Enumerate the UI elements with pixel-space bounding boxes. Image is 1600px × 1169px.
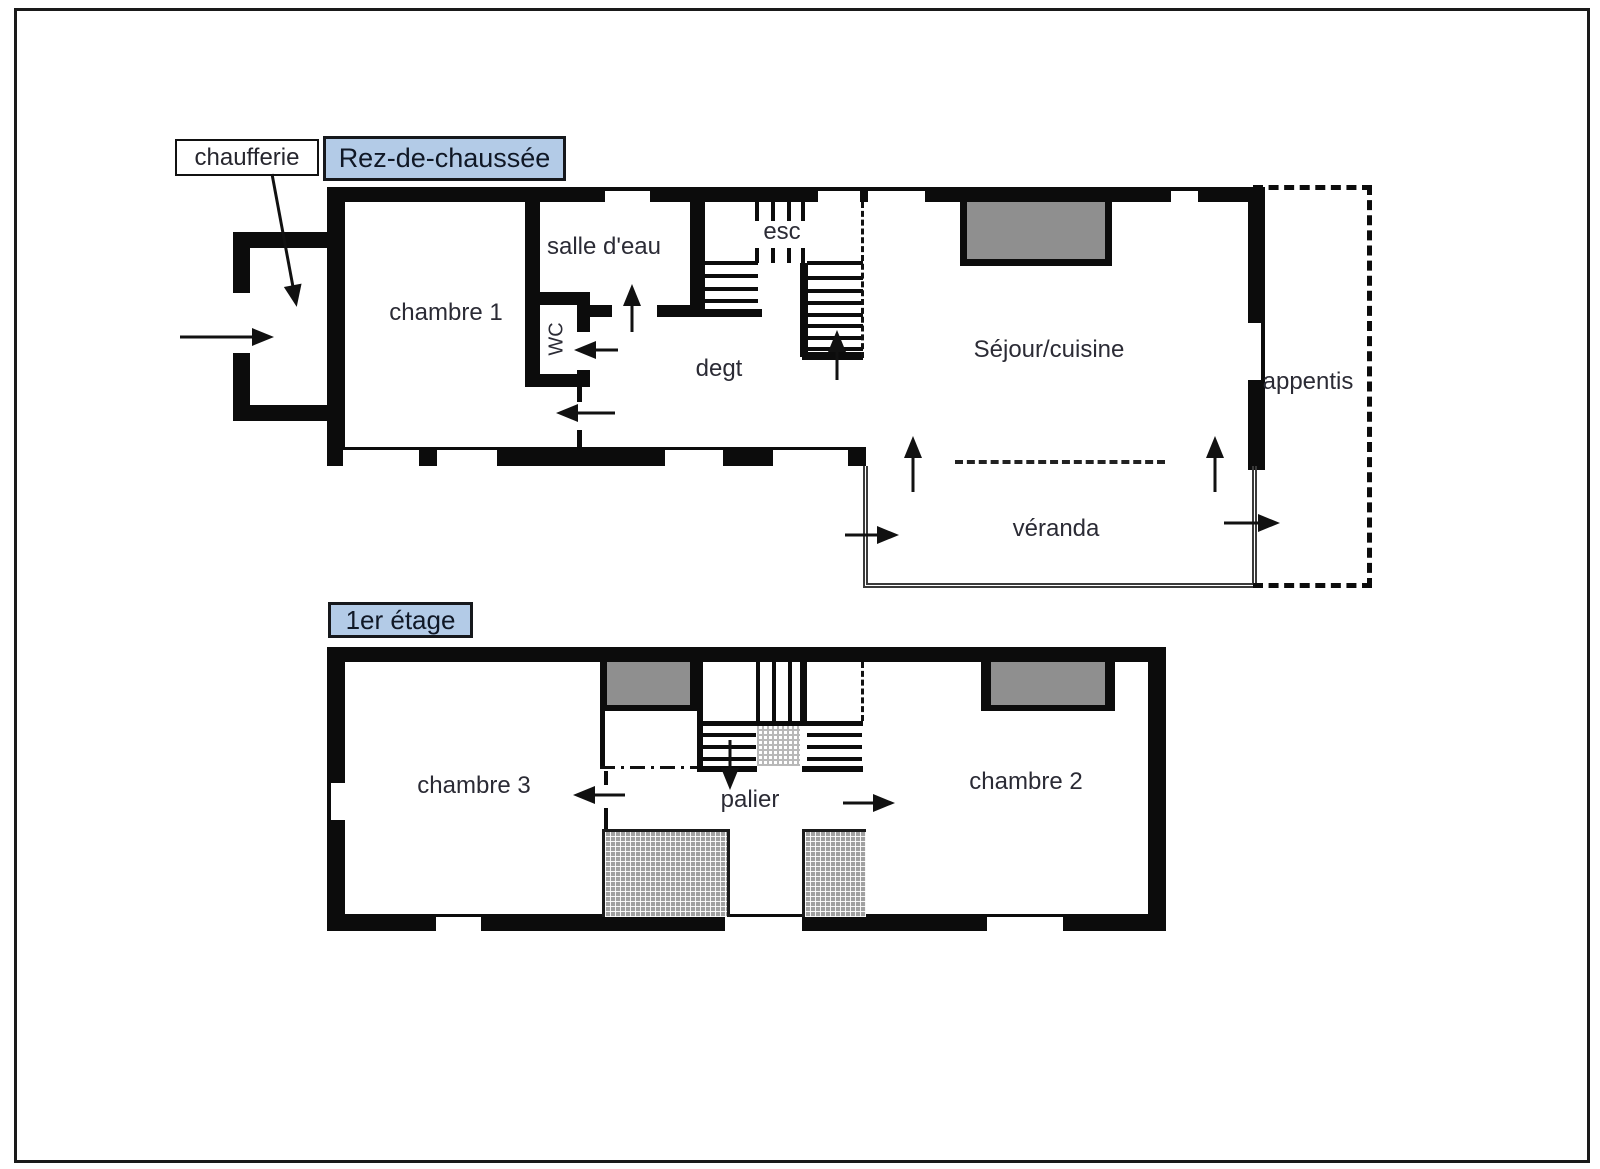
ff-chambre3-wall-lower	[604, 808, 608, 829]
room-label-chambre3: chambre 3	[417, 772, 530, 800]
gf-left-wall	[327, 187, 345, 466]
ff-stairwell-west-wall	[697, 662, 703, 771]
stair-right-flight-edge	[802, 352, 863, 360]
stair-tread	[807, 757, 862, 761]
ff-chimney-right-block	[991, 662, 1105, 705]
wall-chambre1-salledeau	[525, 202, 540, 292]
room-label-salledeau: salle d'eau	[547, 233, 661, 261]
room-label-veranda: véranda	[1013, 515, 1100, 543]
gf-bottom-window-3	[665, 450, 723, 466]
gf-section-dashed-line	[861, 202, 864, 358]
ff-left-window	[331, 783, 345, 820]
ff-top-wall	[327, 647, 1166, 662]
stair-tread	[755, 202, 759, 221]
stair-tread	[703, 745, 756, 749]
stair-tread	[756, 662, 760, 721]
stair-tread	[695, 261, 758, 265]
gf-chimney-block	[967, 202, 1105, 259]
stair-tread	[807, 745, 862, 749]
gf-top-window-4	[1171, 191, 1198, 202]
room-label-palier: palier	[721, 786, 780, 814]
floor-plan-page: chaufferie Rez-de-chaussée 1er étage	[0, 0, 1600, 1169]
room-label-esc: esc	[763, 218, 800, 246]
chaufferie-bottom-wall	[233, 405, 345, 421]
stair-tread	[703, 757, 756, 761]
room-label-sejour-cuisine: Séjour/cuisine	[974, 336, 1125, 364]
stair-tread	[787, 248, 791, 263]
gf-top-window-3	[868, 191, 925, 202]
room-label-degt: degt	[696, 355, 743, 383]
first-floor-title-text: 1er étage	[346, 605, 456, 636]
room-label-chambre2: chambre 2	[969, 768, 1082, 796]
gf-top-window-1	[605, 191, 650, 202]
ff-nook-left-wall	[600, 711, 605, 768]
chaufferie-left-wall-upper	[233, 232, 250, 293]
ff-right-wall	[1148, 647, 1166, 931]
ff-bottom-window-2	[725, 917, 802, 931]
ff-dashed-line-upper	[861, 662, 864, 721]
stair-tread	[788, 662, 792, 721]
gf-bottom-window-2	[437, 450, 497, 466]
ff-left-flight-edge	[697, 766, 757, 772]
stair-tread	[807, 347, 863, 351]
ff-hatched-area-left	[602, 829, 730, 917]
stair-tread	[695, 287, 758, 291]
gf-top-wall	[327, 187, 1265, 202]
stair-tread	[807, 261, 863, 265]
room-label-appentis: appentis	[1263, 368, 1354, 396]
ff-bottom-window-3	[987, 917, 1063, 931]
stair-left-flight-edge	[690, 309, 762, 317]
wc-left-wall	[525, 292, 540, 387]
stair-tread	[807, 336, 863, 340]
stair-tread	[807, 733, 862, 737]
ff-chambre3-wall-upper	[604, 771, 608, 785]
chaufferie-label: chaufferie	[195, 144, 300, 172]
gf-top-window-2	[818, 191, 860, 202]
stair-tread	[695, 274, 758, 278]
stair-tread	[807, 324, 863, 328]
ff-chimney-left-block	[607, 662, 690, 705]
ff-stairwell-mid-wall	[800, 662, 807, 721]
first-floor-title: 1er étage	[328, 602, 473, 638]
stair-tread	[807, 289, 863, 293]
ground-floor-title-text: Rez-de-chaussée	[339, 143, 551, 174]
stair-tread	[771, 248, 775, 263]
stair-tread	[801, 248, 805, 263]
stair-tread	[807, 301, 863, 305]
stair-tread	[807, 276, 863, 280]
stair-tread	[807, 313, 863, 317]
stair-tread	[695, 299, 758, 303]
stair-tread	[801, 202, 805, 221]
gf-bottom-window-1	[343, 450, 419, 466]
room-label-wc: WC	[546, 322, 569, 355]
ff-stairwell-hatched-square	[757, 726, 800, 766]
stair-west-wall	[690, 202, 705, 312]
ff-dashdot-line	[600, 766, 697, 769]
chaufferie-label-box: chaufferie	[175, 139, 319, 176]
ff-bottom-window-1	[436, 917, 481, 931]
wall-chambre1-degt-lower	[577, 430, 582, 447]
ff-hatched-area-right	[802, 829, 866, 917]
wc-bottom-wall	[525, 374, 590, 387]
wall-chambre1-degt-upper	[577, 387, 582, 402]
ground-floor-title: Rez-de-chaussée	[323, 136, 566, 181]
stair-tread	[703, 733, 756, 737]
ff-right-flight-edge	[802, 766, 863, 772]
gf-bottom-window-4	[773, 450, 848, 466]
stair-tread	[772, 662, 776, 721]
room-label-chambre1: chambre 1	[389, 299, 502, 327]
sejour-veranda-dashed-line	[955, 460, 1165, 464]
salledeau-bottom-wall-left	[577, 305, 612, 317]
